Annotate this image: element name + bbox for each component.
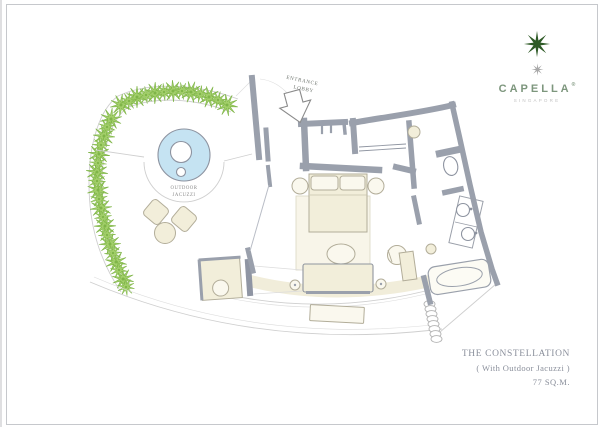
room-name: THE CONSTELLATION [462,349,570,359]
rolled-screen [424,301,442,343]
brand-name: CAPELLA® [492,82,582,95]
ottoman [327,244,355,264]
room-area: 77 SQ.M. [462,377,570,387]
sink [462,228,475,241]
sink [457,204,470,217]
bath-stool [426,244,436,254]
glass-wall-stub [266,130,268,159]
nightstand-lamp [292,178,308,194]
entrance: ENTRANCE LOBBY [276,75,318,127]
terrace-table [155,223,176,244]
desk-chair [212,280,229,297]
jacuzzi-step [177,168,186,177]
north-wall [352,105,453,123]
pillow [311,176,338,190]
nightstand-lamp [368,178,384,194]
terrace-lounger [142,198,170,226]
vanity [449,196,483,248]
pillow [340,176,365,190]
capella-small-star-icon [531,63,544,76]
outdoor-jacuzzi: OUTDOOR JACUZZI [96,129,252,202]
room-subtitle: ( With Outdoor Jacuzzi ) [462,363,570,373]
capella-logo: CAPELLA® SINGAPORE [492,30,582,103]
bath-shelf [442,186,465,196]
terrace-furniture [142,198,198,244]
balcony-bench [310,305,365,324]
closet-stool [408,126,420,138]
desk-area [199,256,254,301]
bathroom-cabinet [399,251,417,281]
jacuzzi-center [171,142,192,163]
capella-star-icon [523,30,551,58]
headboard-wall [303,166,379,170]
jacuzzi-label-line1: OUTDOOR [171,186,198,191]
jacuzzi-label-line2: JACUZZI [173,193,196,198]
sliding-glass-door [250,185,269,251]
trademark-symbol: ® [572,82,576,88]
brand-location: SINGAPORE [492,98,582,103]
east-wall [452,104,497,283]
entrance-wall [252,78,259,157]
bathtub [427,258,492,295]
closet-rail [359,144,406,151]
title-block: THE CONSTELLATION ( With Outdoor Jacuzzi… [462,349,570,387]
corridor-wall [304,121,306,168]
bedroom [254,174,407,294]
corridor-top-wall [301,122,345,124]
window-sofa [303,264,373,292]
